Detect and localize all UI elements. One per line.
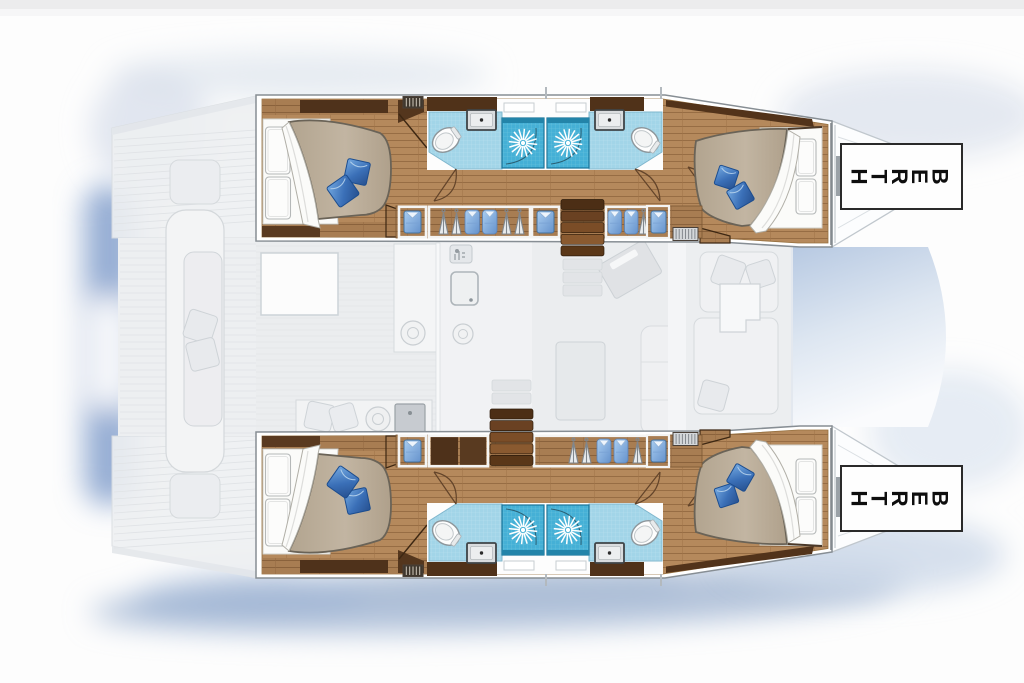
svg-text:B: B [927, 490, 952, 506]
svg-text:B: B [927, 168, 952, 184]
